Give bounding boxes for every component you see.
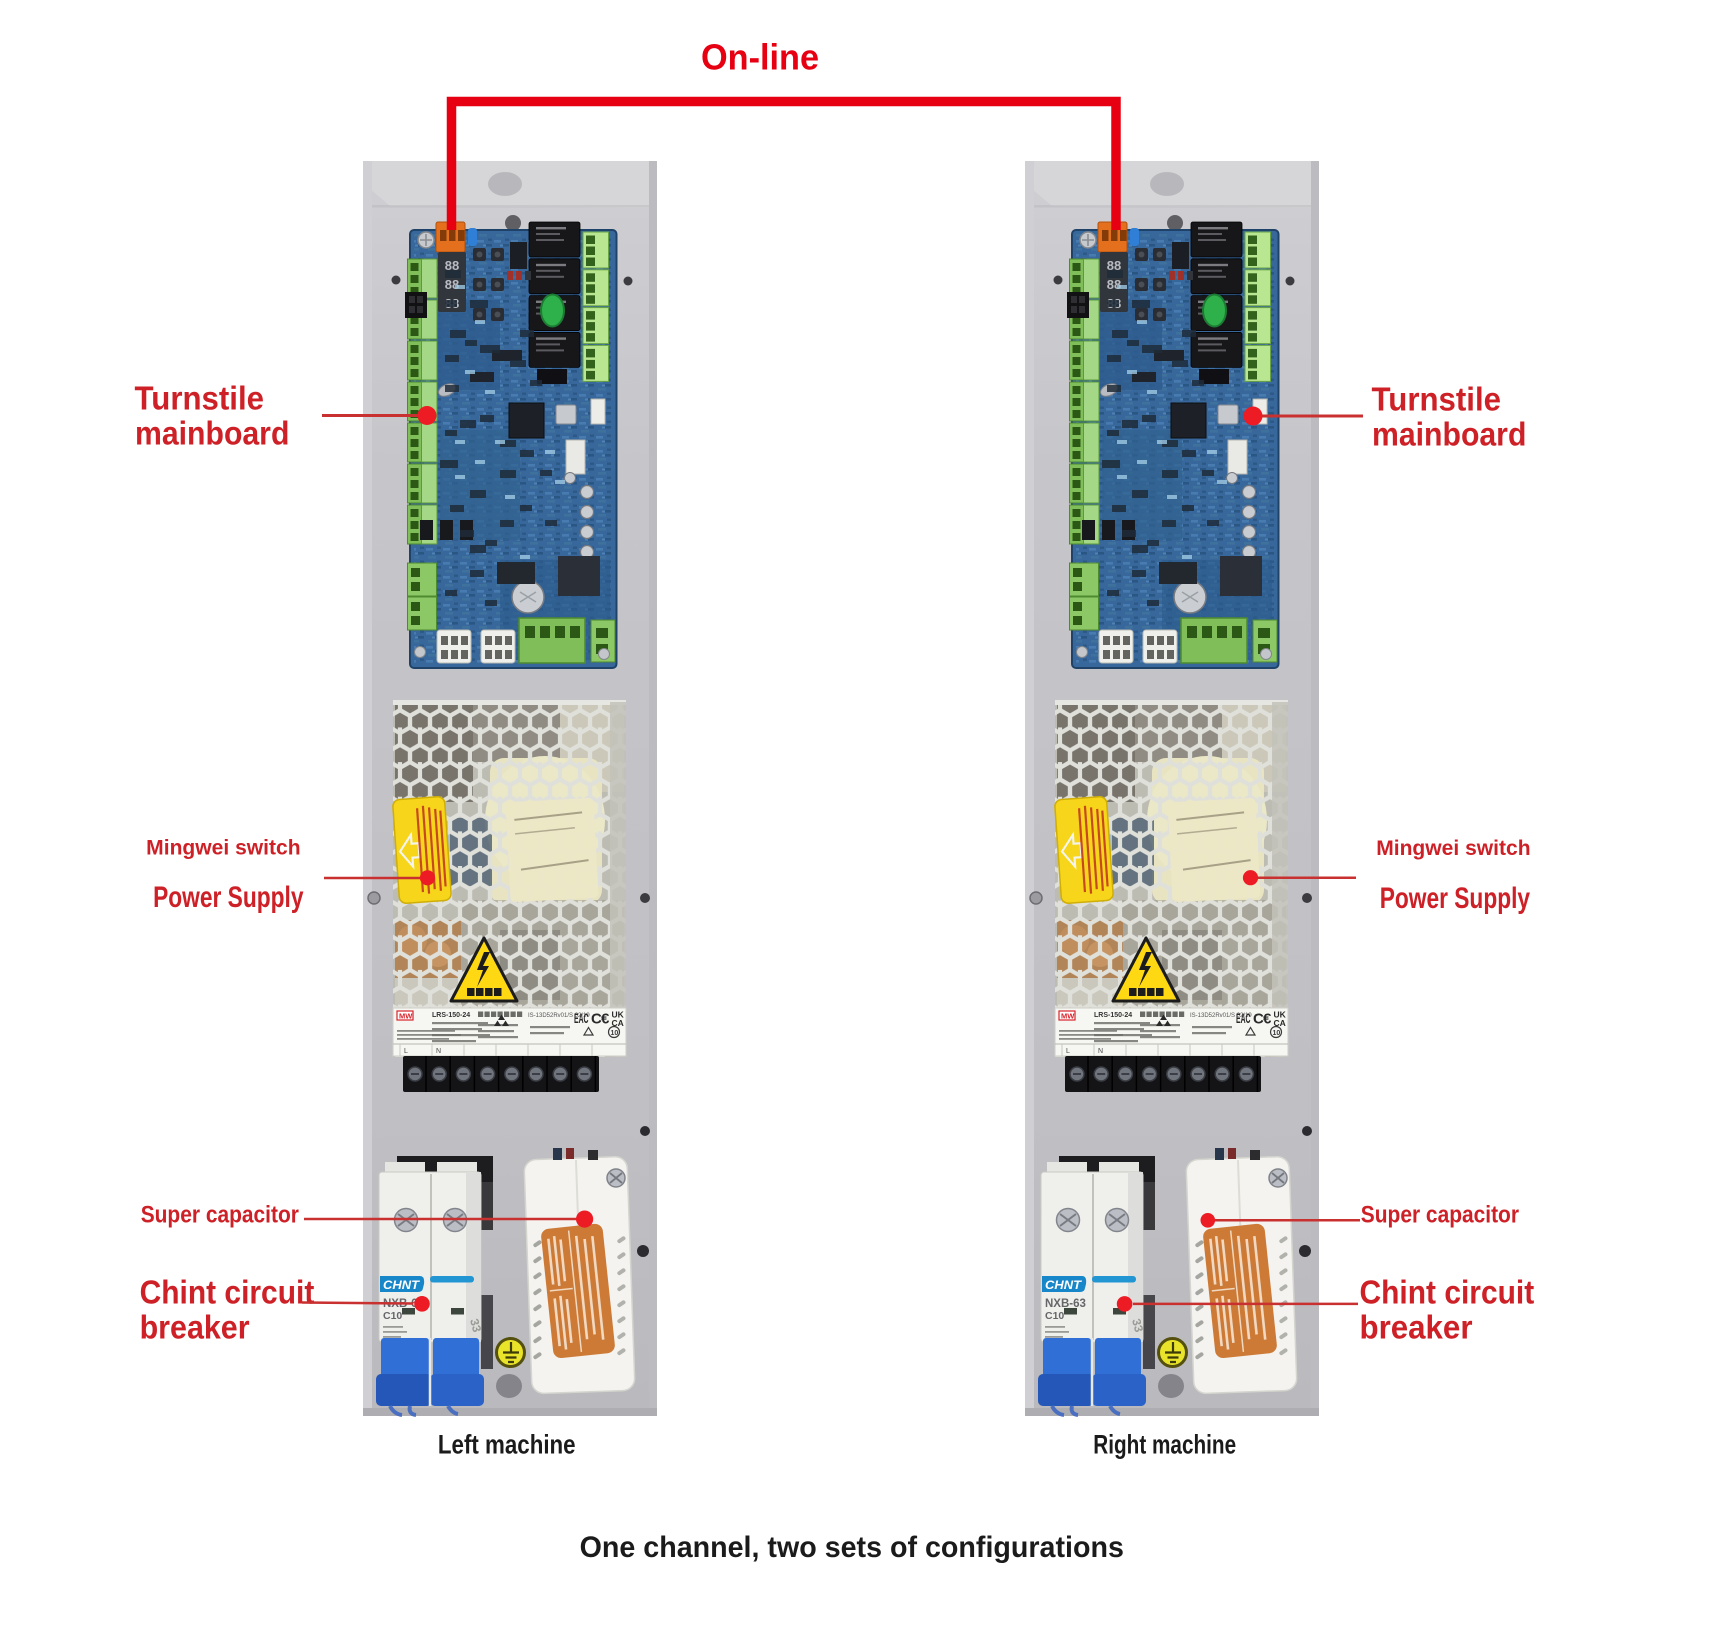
svg-text:CHNT: CHNT	[1045, 1278, 1083, 1292]
svg-text:CHNT: CHNT	[383, 1278, 421, 1292]
svg-text:LRS-150-24: LRS-150-24	[432, 1012, 470, 1019]
svg-text:On-line: On-line	[701, 37, 819, 78]
svg-text:Turnstile: Turnstile	[1372, 381, 1502, 418]
svg-text:Mingwei switch: Mingwei switch	[146, 836, 300, 859]
svg-text:10: 10	[611, 1030, 619, 1037]
svg-text:Power Supply: Power Supply	[153, 881, 304, 914]
svg-text:88: 88	[445, 277, 459, 292]
svg-text:MW: MW	[399, 1012, 413, 1021]
svg-text:Right machine: Right machine	[1093, 1430, 1236, 1460]
svg-text:Chint circuit: Chint circuit	[1360, 1274, 1535, 1311]
svg-text:L: L	[1066, 1048, 1070, 1055]
svg-text:C10: C10	[1045, 1310, 1064, 1322]
svg-text:C10: C10	[383, 1310, 402, 1322]
svg-text:mainboard: mainboard	[135, 415, 289, 452]
svg-text:L: L	[404, 1048, 408, 1055]
svg-text:Left machine: Left machine	[438, 1430, 576, 1460]
svg-text:LRS-150-24: LRS-150-24	[1094, 1012, 1132, 1019]
svg-text:MW: MW	[1061, 1012, 1075, 1021]
svg-text:EAC: EAC	[1236, 1010, 1251, 1026]
svg-text:N: N	[1098, 1048, 1103, 1055]
svg-text:N: N	[436, 1048, 441, 1055]
svg-text:Power Supply: Power Supply	[1380, 882, 1531, 915]
svg-text:Super capacitor: Super capacitor	[1361, 1201, 1519, 1228]
svg-text:88: 88	[1107, 277, 1121, 292]
svg-text:breaker: breaker	[1360, 1309, 1473, 1346]
svg-text:Chint circuit: Chint circuit	[140, 1274, 315, 1311]
svg-text:Mingwei switch: Mingwei switch	[1376, 837, 1530, 860]
svg-text:€: €	[1263, 1011, 1272, 1028]
svg-text:Super capacitor: Super capacitor	[141, 1201, 299, 1228]
svg-text:mainboard: mainboard	[1372, 416, 1526, 453]
svg-text:10: 10	[1273, 1030, 1281, 1037]
svg-text:One channel, two sets of confi: One channel, two sets of configurations	[580, 1531, 1124, 1564]
svg-text:breaker: breaker	[140, 1309, 250, 1346]
svg-text:EAC: EAC	[574, 1010, 589, 1026]
svg-text:Turnstile: Turnstile	[135, 380, 265, 417]
svg-text:€: €	[601, 1011, 610, 1028]
